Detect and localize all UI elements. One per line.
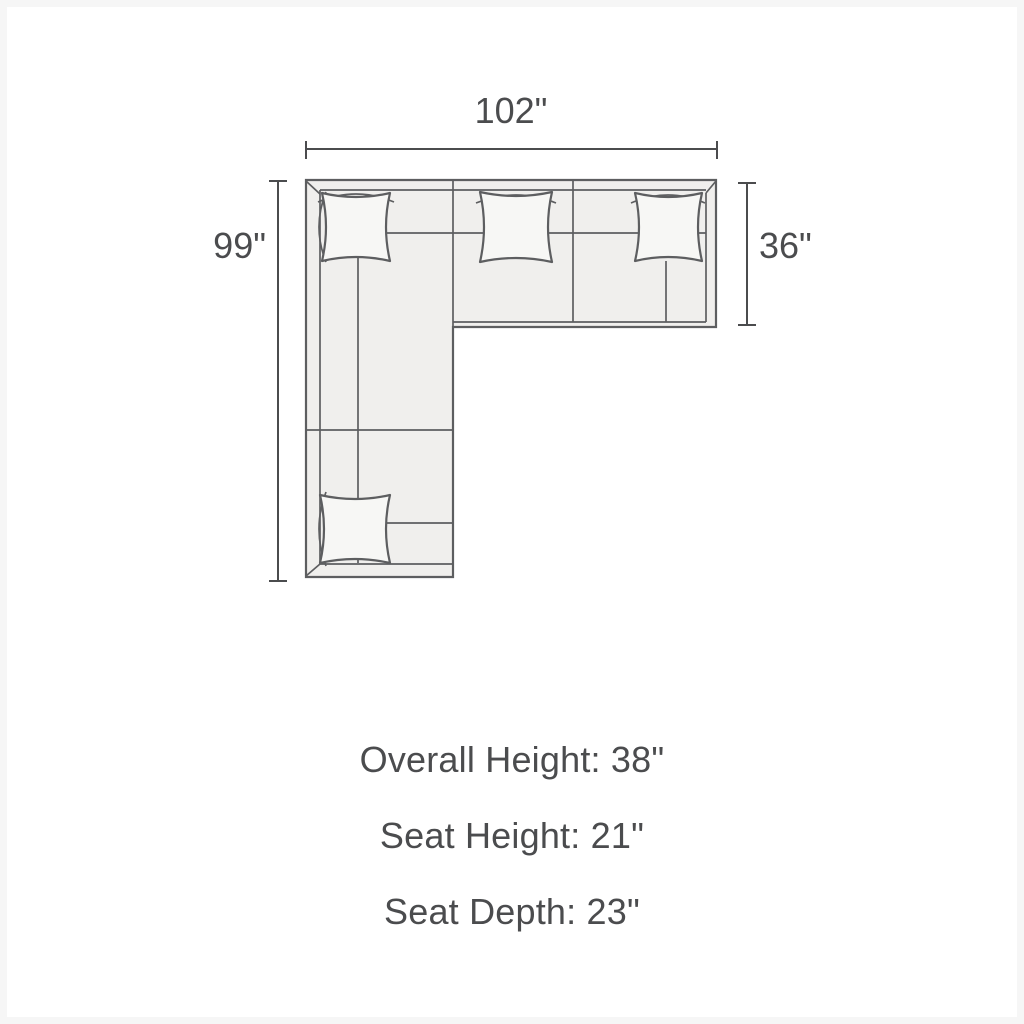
sofa-outline	[306, 180, 716, 577]
height-dimension-label: 99"	[213, 225, 266, 266]
sectional-sofa-top-view-diagram: 102" 99" 36"	[0, 0, 1024, 1024]
depth-dimension: 36"	[738, 183, 812, 325]
width-dimension: 102"	[306, 90, 717, 159]
height-dimension: 99"	[213, 181, 287, 581]
pillow-corner	[322, 193, 390, 261]
spec-seat-height: Seat Height: 21"	[0, 812, 1024, 860]
product-dimension-diagram: 102" 99" 36"	[0, 0, 1024, 1024]
pillow-right	[635, 193, 702, 261]
depth-dimension-label: 36"	[759, 225, 812, 266]
pillow-middle	[480, 192, 552, 262]
spec-overall-height: Overall Height: 38"	[0, 736, 1024, 784]
pillow-chaise	[320, 495, 390, 563]
spec-seat-depth: Seat Depth: 23"	[0, 888, 1024, 936]
width-dimension-label: 102"	[475, 90, 548, 131]
